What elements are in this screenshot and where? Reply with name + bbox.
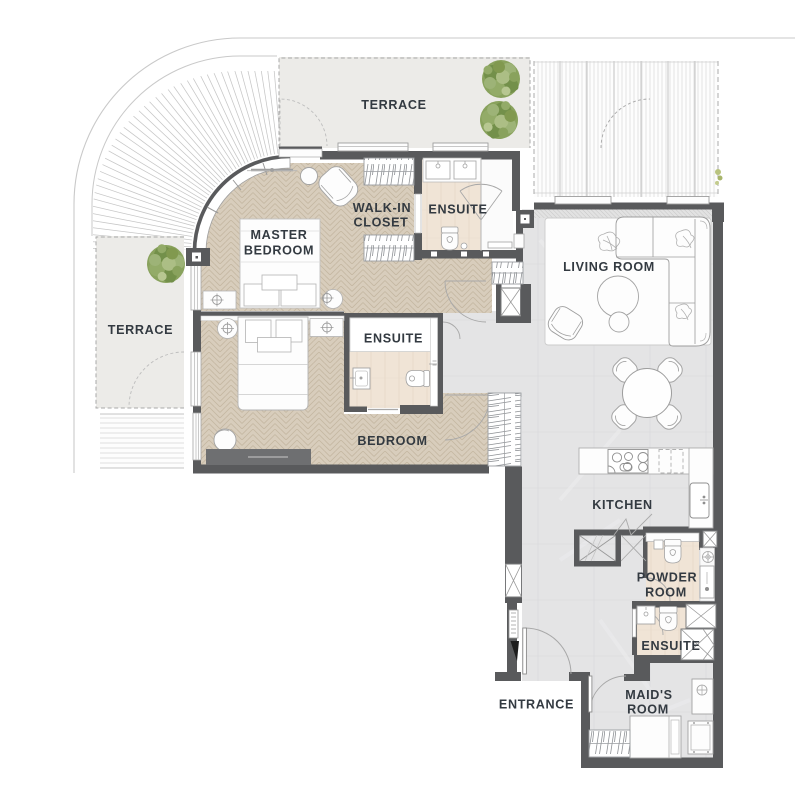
svg-text:MASTER: MASTER: [250, 228, 307, 242]
svg-text:BEDROOM: BEDROOM: [244, 244, 314, 258]
svg-text:CLOSET: CLOSET: [354, 216, 409, 230]
svg-text:MAID'S: MAID'S: [625, 688, 672, 702]
svg-text:POWDER: POWDER: [637, 571, 698, 585]
svg-text:TERRACE: TERRACE: [361, 98, 426, 112]
svg-text:KITCHEN: KITCHEN: [592, 498, 653, 512]
svg-text:ROOM: ROOM: [645, 586, 687, 600]
svg-text:ENTRANCE: ENTRANCE: [499, 698, 574, 712]
svg-text:TERRACE: TERRACE: [108, 323, 173, 337]
svg-text:WALK-IN: WALK-IN: [353, 201, 411, 215]
svg-text:ENSUITE: ENSUITE: [364, 332, 423, 346]
svg-text:ENSUITE: ENSUITE: [641, 639, 700, 653]
svg-text:ENSUITE: ENSUITE: [428, 203, 487, 217]
svg-text:ROOM: ROOM: [627, 703, 669, 717]
svg-text:LIVING ROOM: LIVING ROOM: [563, 260, 655, 274]
svg-text:BEDROOM: BEDROOM: [357, 434, 427, 448]
